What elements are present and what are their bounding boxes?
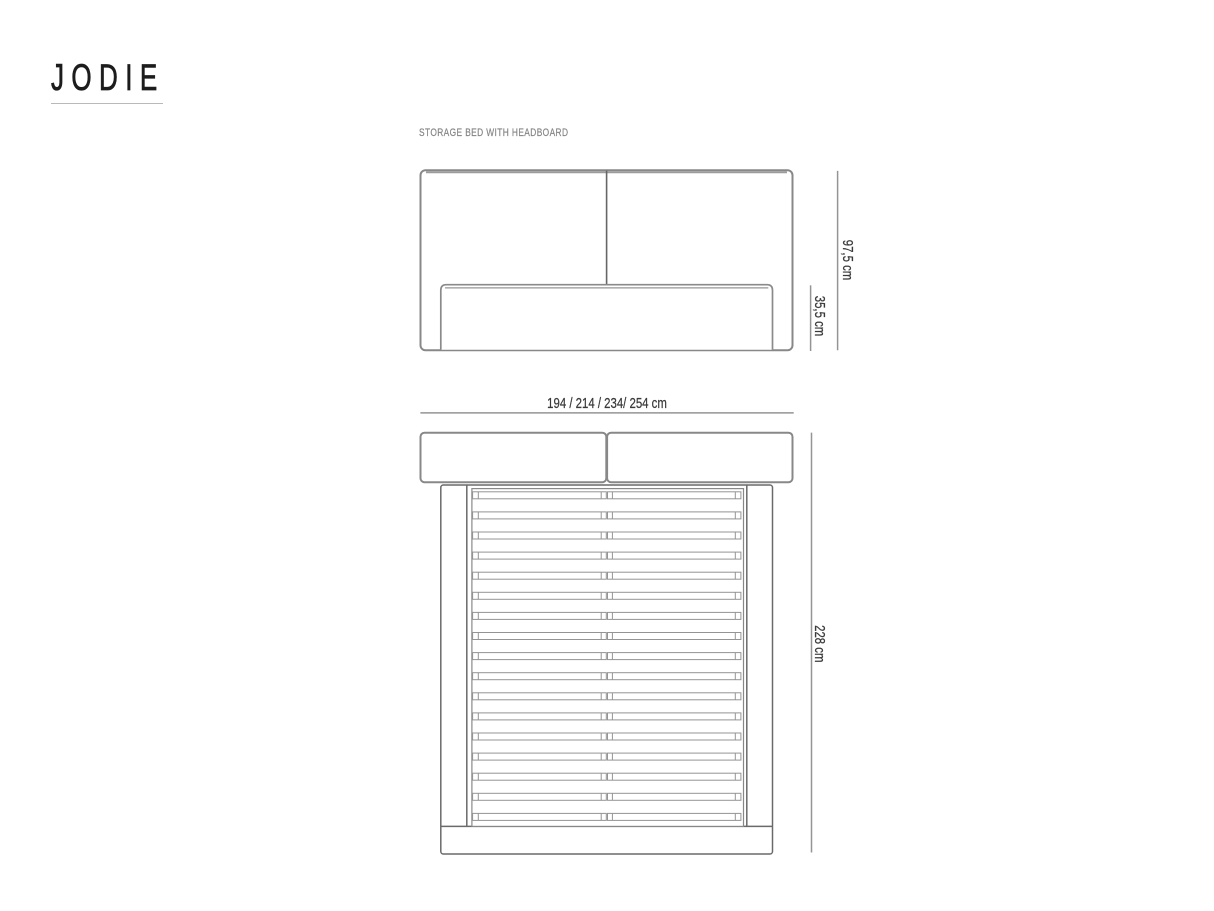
- svg-text:194 / 214 / 234/ 254 cm: 194 / 214 / 234/ 254 cm: [547, 394, 667, 411]
- svg-text:228 cm: 228 cm: [812, 625, 829, 662]
- svg-text:35,5 cm: 35,5 cm: [812, 296, 829, 337]
- svg-text:97,5 cm: 97,5 cm: [840, 240, 857, 281]
